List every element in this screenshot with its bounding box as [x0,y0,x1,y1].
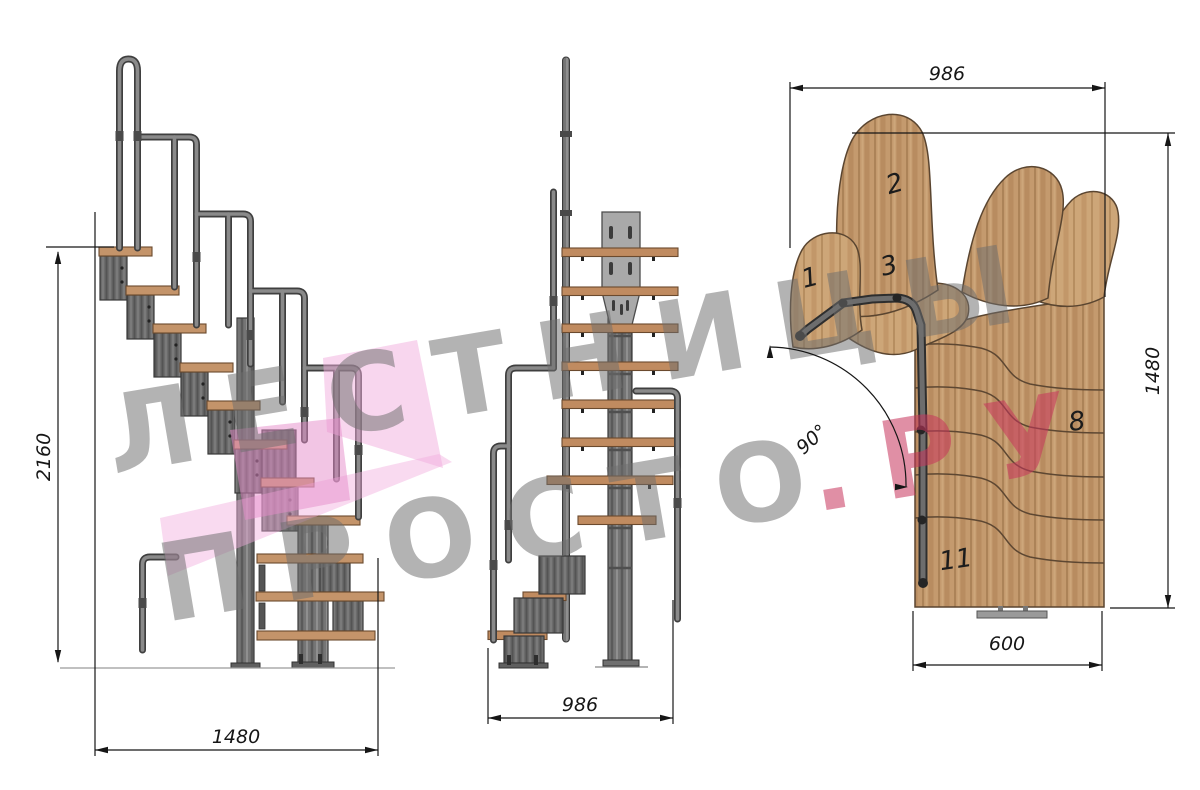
staircase-technical-drawing: ЛЕСТНИЦЫ ПРОСТО .РУ [0,0,1200,790]
dim-plan-bottom: 600 [989,633,1025,655]
pole-joint [560,210,572,216]
dim-side-width: 1480 [212,726,260,748]
tread-number-11: 11 [937,543,974,577]
dim-plan-top: 986 [929,63,965,85]
dim-plan-right: 1480 [1142,347,1164,395]
plan-foot-bracket [977,606,1047,618]
dim-side-height: 2160 [33,433,55,481]
column-foot [603,660,639,666]
staircase-drawing-page: ЛЕСТНИЦЫ ПРОСТО .РУ [0,0,1200,790]
pole-joint [560,131,572,137]
dim-front-width: 986 [562,694,598,716]
